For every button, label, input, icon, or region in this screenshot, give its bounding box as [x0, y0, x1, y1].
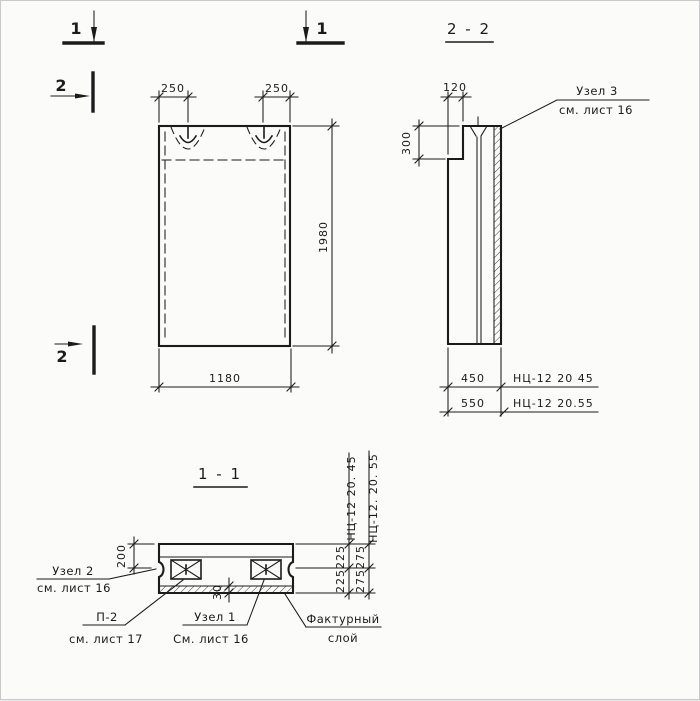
lifting-loop-right	[247, 127, 281, 149]
callout-uzel2-ref: см. лист 16	[37, 581, 111, 595]
section-1-1-view: 1 - 1 200 30	[37, 451, 381, 646]
callout-uzel2-name: Узел 2	[52, 564, 94, 578]
cut-marker-1-right: 1	[298, 11, 343, 43]
dim-1980: 1980	[317, 221, 330, 253]
cut-marker-2-top: 2	[51, 73, 93, 111]
dim-450: 450	[461, 372, 485, 385]
dim-275-a: 275	[354, 545, 367, 569]
callout-uzel3-name: Узел 3	[576, 84, 618, 98]
mark-rot-nc-12-20-55: НЦ-12. 20. 55	[367, 453, 380, 543]
channel-pocket-right	[251, 560, 281, 579]
lifting-loop-left	[171, 127, 205, 149]
dim-30: 30	[211, 584, 224, 600]
cut-marker-1-left: 1	[64, 11, 103, 43]
dim-300: 300	[400, 131, 413, 155]
textured-layer-edge	[494, 127, 501, 343]
dim-panel-height: 1980	[293, 119, 339, 353]
callout-uzel3-ref: см. лист 16	[559, 103, 633, 117]
mark-nc-12-20-55: НЦ-12 20.55	[513, 397, 594, 410]
dim-step-width: 120	[441, 81, 471, 154]
channel-pocket-left	[171, 560, 201, 579]
panel-outline	[159, 126, 290, 346]
callout-factured-line1: Фактурный	[306, 612, 379, 626]
cut-label-2-top: 2	[55, 76, 66, 95]
callout-factured-layer: Фактурный слой	[285, 594, 381, 645]
joint-groove	[470, 117, 487, 343]
dim-225-a: 225	[334, 545, 347, 569]
dim-550: 550	[461, 397, 485, 410]
mark-nc-12-20-45: НЦ-12 20 45	[513, 372, 594, 385]
cut-label-1-right: 1	[316, 19, 327, 38]
dim-200: 200	[115, 544, 128, 568]
elevation-view: 250 250 1180 1980	[151, 82, 339, 392]
callout-uzel1-ref: См. лист 16	[173, 632, 249, 646]
section-2-2-view: 2 - 2 120 300	[400, 20, 649, 416]
cut-marker-2-bottom: 2	[55, 327, 94, 373]
hidden-edge-lines	[162, 132, 287, 341]
dim-250-left: 250	[161, 82, 185, 95]
cut-label-2-bottom: 2	[56, 347, 67, 366]
section-1-1-title: 1 - 1	[198, 465, 242, 483]
mark-rot-nc-12-20-45: НЦ-12 20. 45	[345, 455, 358, 540]
callout-uzel-3: Узел 3 см. лист 16	[500, 84, 649, 129]
callout-factured-line2: слой	[328, 631, 358, 645]
dim-top-offset: 200	[115, 537, 154, 574]
dim-275-b: 275	[354, 569, 367, 593]
dim-variant-lines: 225 225 275 275 НЦ-12 20. 45 НЦ-12. 20. …	[296, 451, 380, 599]
section-2-2-title: 2 - 2	[447, 20, 491, 38]
dim-250-right: 250	[265, 82, 289, 95]
callout-uzel-2: Узел 2 см. лист 16	[37, 564, 156, 595]
callout-uzel1-name: Узел 1	[194, 610, 236, 624]
callout-p2-name: П-2	[96, 610, 118, 624]
dim-panel-width: 1180	[151, 349, 299, 392]
section-2-2-outline	[448, 126, 501, 344]
dim-120: 120	[443, 81, 467, 94]
cut-label-1-left: 1	[70, 19, 81, 38]
panel-drawing: 1 1 2 2	[1, 1, 700, 701]
callout-p2-ref: см. лист 17	[69, 632, 143, 646]
drawing-sheet: 1 1 2 2	[0, 0, 700, 700]
dim-thickness-variants: 450 НЦ-12 20 45 550 НЦ-12 20.55	[440, 348, 598, 416]
dim-loop-left: 250	[151, 82, 196, 122]
dim-1180: 1180	[209, 372, 241, 385]
dim-225-b: 225	[334, 569, 347, 593]
dim-loop-right: 250	[255, 82, 298, 122]
